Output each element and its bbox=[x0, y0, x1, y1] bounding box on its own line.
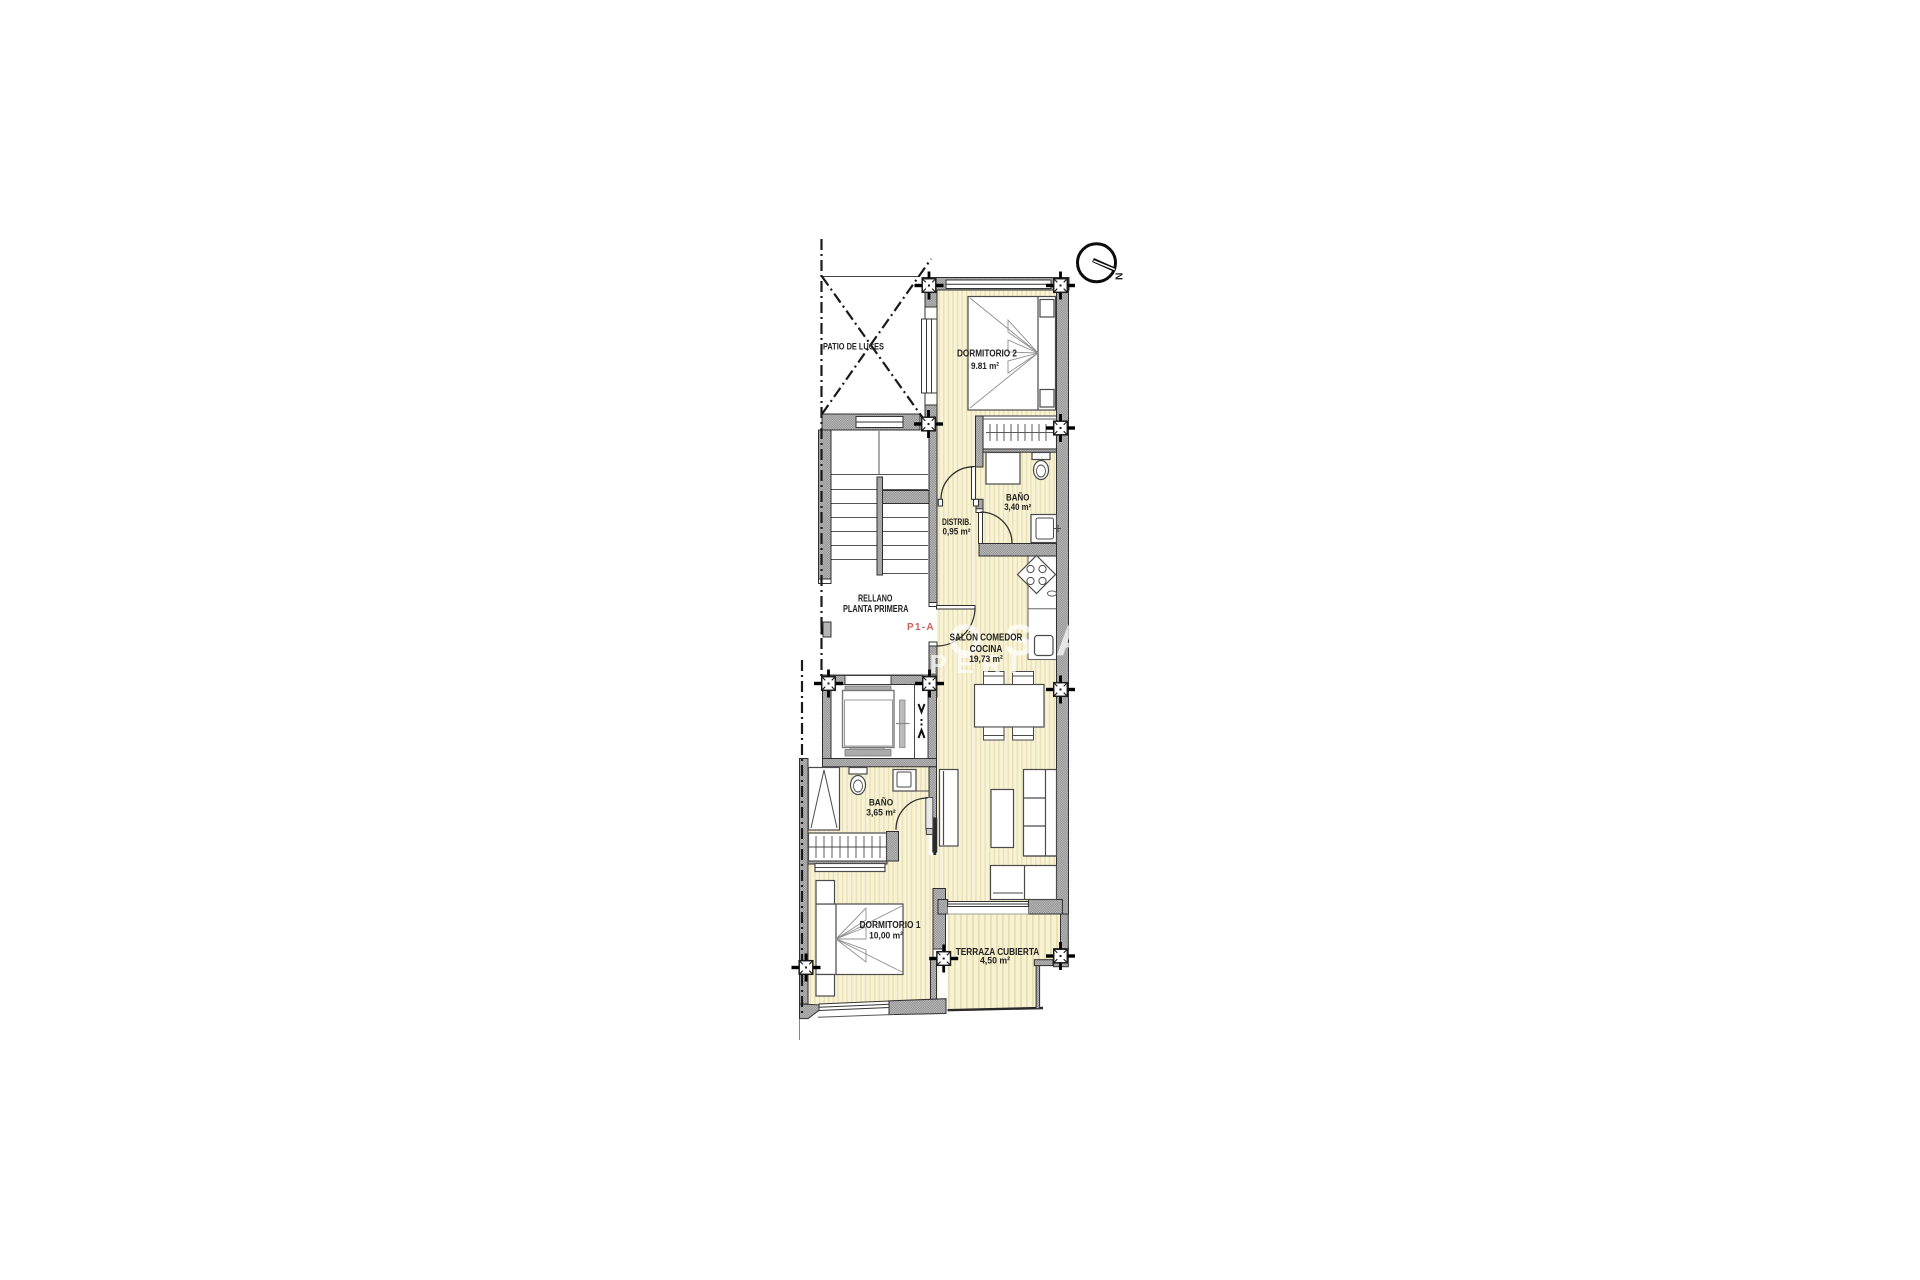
svg-text:N: N bbox=[1113, 273, 1125, 281]
svg-text:9.81 m²: 9.81 m² bbox=[971, 361, 999, 371]
svg-text:SALÓN COMEDOR: SALÓN COMEDOR bbox=[950, 632, 1023, 644]
svg-text:3,65 m²: 3,65 m² bbox=[866, 807, 896, 817]
svg-text:0,95 m²: 0,95 m² bbox=[943, 526, 971, 536]
svg-text:P1-A: P1-A bbox=[907, 621, 935, 633]
svg-text:PLANTA PRIMERA: PLANTA PRIMERA bbox=[843, 604, 909, 615]
svg-text:BAÑO: BAÑO bbox=[1006, 492, 1029, 502]
svg-text:DISTRIB.: DISTRIB. bbox=[942, 517, 971, 527]
svg-text:10,00 m²: 10,00 m² bbox=[869, 930, 903, 940]
svg-text:3,40 m²: 3,40 m² bbox=[1004, 502, 1031, 512]
svg-text:RELLANO: RELLANO bbox=[858, 593, 893, 604]
svg-text:4,50 m²: 4,50 m² bbox=[980, 956, 1010, 966]
svg-text:19,73 m²: 19,73 m² bbox=[969, 654, 1003, 664]
svg-text:BAÑO: BAÑO bbox=[869, 798, 893, 808]
svg-text:PATIO DE LUCES: PATIO DE LUCES bbox=[823, 341, 884, 352]
svg-text:DORMITORIO 2: DORMITORIO 2 bbox=[957, 348, 1017, 359]
